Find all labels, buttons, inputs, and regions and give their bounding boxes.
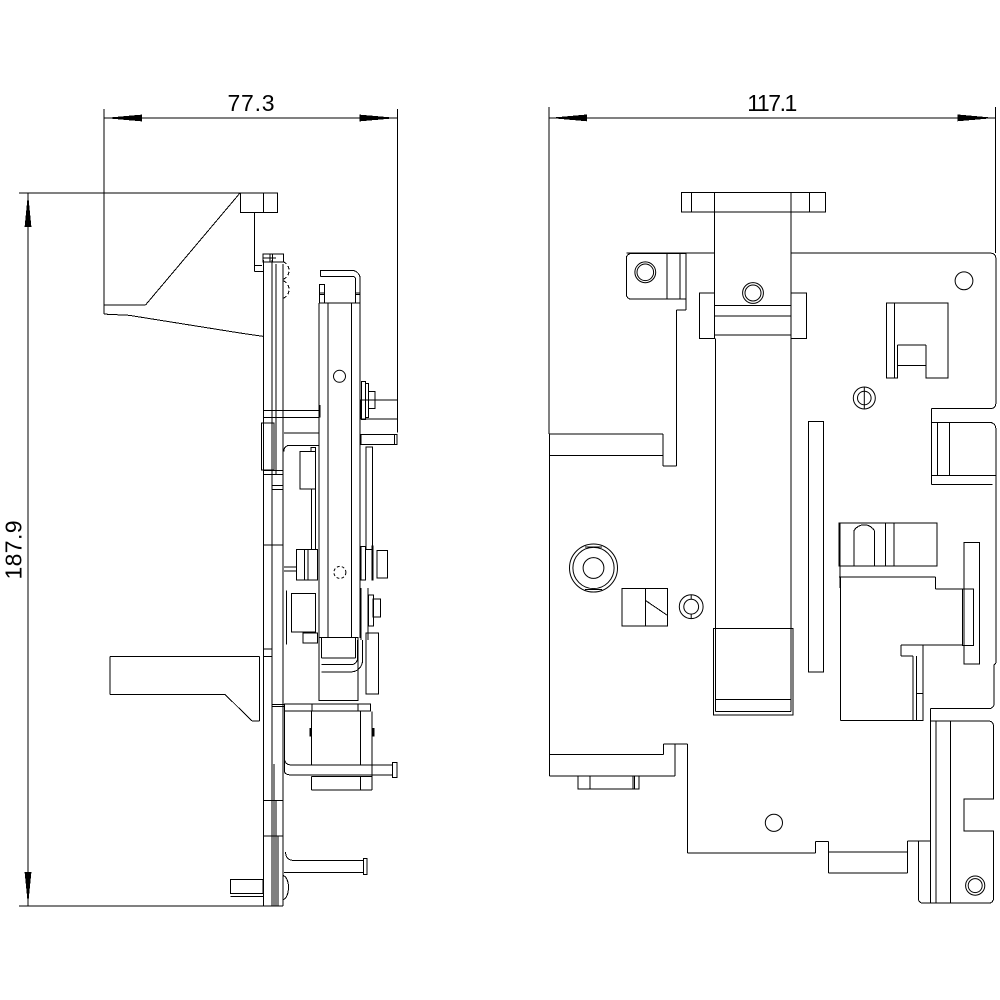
svg-text:187.9: 187.9 <box>1 521 27 580</box>
svg-text:77.3: 77.3 <box>228 90 275 116</box>
svg-text:117.1: 117.1 <box>747 90 797 116</box>
